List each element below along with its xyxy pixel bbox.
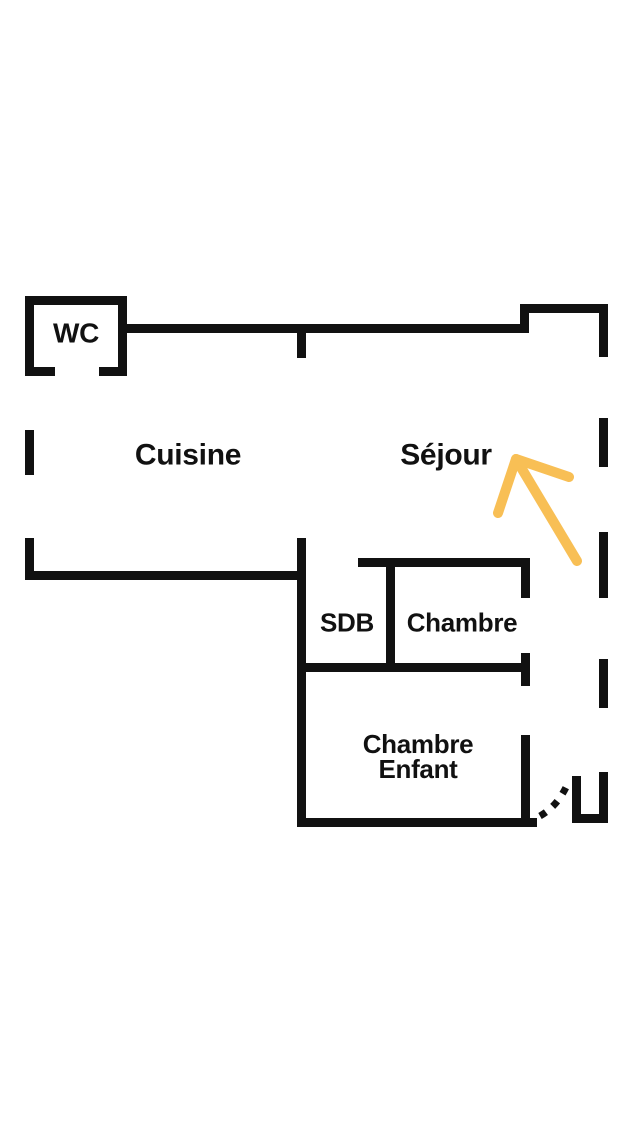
wall-right-dash-1 bbox=[599, 304, 608, 357]
wall-wc-right bbox=[118, 296, 127, 376]
room-label-chambre: Chambre bbox=[407, 609, 518, 636]
hand-drawn-arrow-annotation bbox=[498, 459, 577, 561]
floor-plan-canvas: WC Cuisine Séjour SDB Chambre Chambre En… bbox=[0, 0, 640, 1136]
room-label-sejour: Séjour bbox=[400, 439, 492, 471]
wall-top-stub bbox=[297, 333, 306, 358]
wall-wc-left bbox=[25, 296, 34, 376]
wall-right-dash-4 bbox=[599, 659, 608, 708]
wall-wc-bottom-left bbox=[25, 367, 55, 376]
room-label-chambre-enfant-line2: Enfant bbox=[363, 757, 474, 782]
room-label-chambre-enfant: Chambre Enfant bbox=[363, 732, 474, 782]
wall-main-vertical bbox=[297, 538, 306, 827]
wall-top-main bbox=[127, 324, 520, 333]
wall-chambre-enfant-bottom bbox=[297, 818, 537, 827]
wall-top-step-horizontal bbox=[520, 304, 608, 313]
room-label-sdb: SDB bbox=[320, 609, 374, 636]
wall-sdb-chambre-top bbox=[358, 558, 530, 567]
room-label-cuisine: Cuisine bbox=[135, 439, 241, 471]
door-swing-arc bbox=[540, 783, 568, 816]
wall-wc-top bbox=[25, 296, 127, 305]
wall-right-dash-2 bbox=[599, 418, 608, 467]
wall-chambre-right-stub bbox=[521, 653, 530, 686]
wall-chambre-enfant-right bbox=[521, 735, 530, 827]
room-label-wc: WC bbox=[53, 318, 99, 347]
wall-sdb-chambre-divider bbox=[386, 558, 395, 672]
walls bbox=[25, 296, 608, 827]
wall-cuisine-bottom bbox=[25, 571, 306, 580]
wall-entrance-jamb-right bbox=[599, 772, 608, 823]
wall-left-dash-1 bbox=[25, 430, 34, 475]
wall-chambre-right-top bbox=[521, 558, 530, 598]
wall-wc-bottom-right bbox=[99, 367, 127, 376]
wall-right-dash-3 bbox=[599, 532, 608, 598]
wall-sdb-bottom bbox=[297, 663, 530, 672]
floor-plan-drawing bbox=[0, 0, 640, 1136]
